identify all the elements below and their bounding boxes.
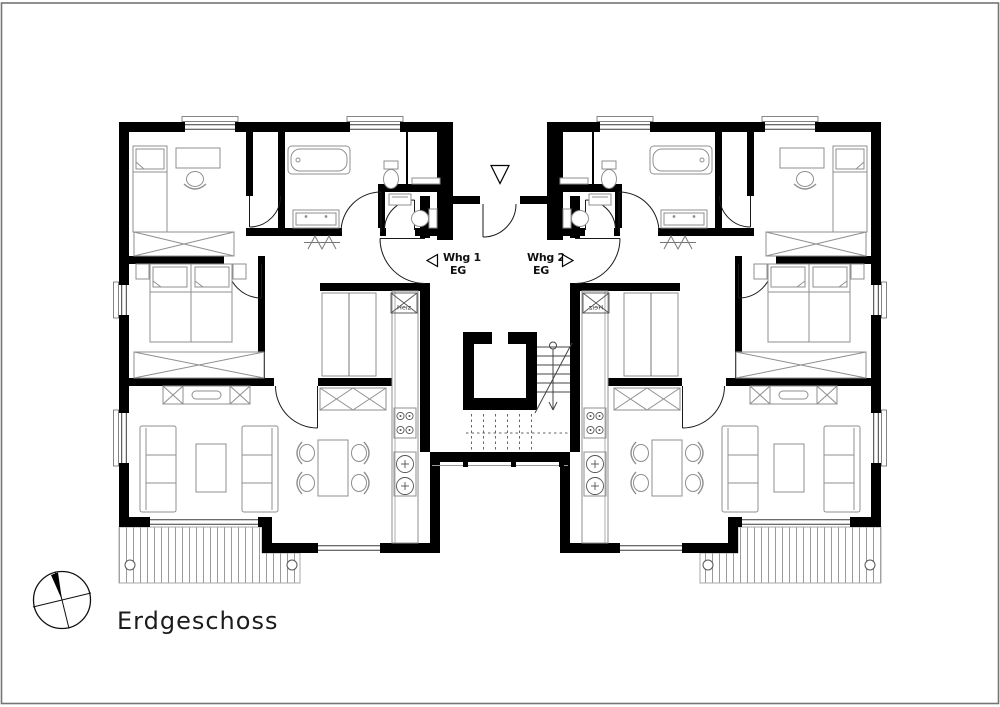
sideboard	[163, 386, 250, 404]
cooktop-icon	[394, 408, 416, 438]
triangle-right-icon	[563, 255, 574, 267]
north-arrow-icon	[33, 572, 91, 629]
apartment1-floor: EG	[450, 264, 466, 277]
entrance	[483, 166, 516, 238]
bedroom-master	[134, 264, 264, 378]
stair-upper-flight-dashed	[466, 414, 570, 456]
page-title: Erdgeschoss	[117, 607, 278, 635]
storage-room	[320, 293, 386, 410]
heating-label-right: Heiz	[588, 304, 603, 312]
apartment2-name: Whg 2	[527, 251, 565, 264]
drawing-sheet: Whg 1 EG Whg 2 EG Heiz Heiz Erdgeschoss	[0, 0, 1000, 707]
apartment-2-plan	[520, 117, 887, 584]
apartment2-floor: EG	[533, 264, 549, 277]
stair-direction-icon	[549, 342, 557, 410]
kitchen	[391, 291, 418, 543]
apartment-1-plan	[114, 117, 481, 584]
dining-area	[297, 440, 369, 496]
hall-south-wall	[430, 452, 570, 462]
staircase	[430, 332, 572, 467]
triangle-left-icon	[427, 255, 438, 267]
floor-plan-canvas: Whg 1 EG Whg 2 EG Heiz Heiz Erdgeschoss	[0, 0, 1000, 707]
apartment1-name: Whg 1	[443, 251, 481, 264]
kitchen-sink-icon	[394, 452, 416, 496]
terrace	[119, 527, 300, 583]
stair-core-walls	[463, 332, 537, 410]
living-room	[140, 426, 278, 512]
bedroom-child	[133, 146, 234, 256]
heating-label-left: Heiz	[397, 304, 412, 312]
entrance-triangle-icon	[491, 166, 509, 184]
